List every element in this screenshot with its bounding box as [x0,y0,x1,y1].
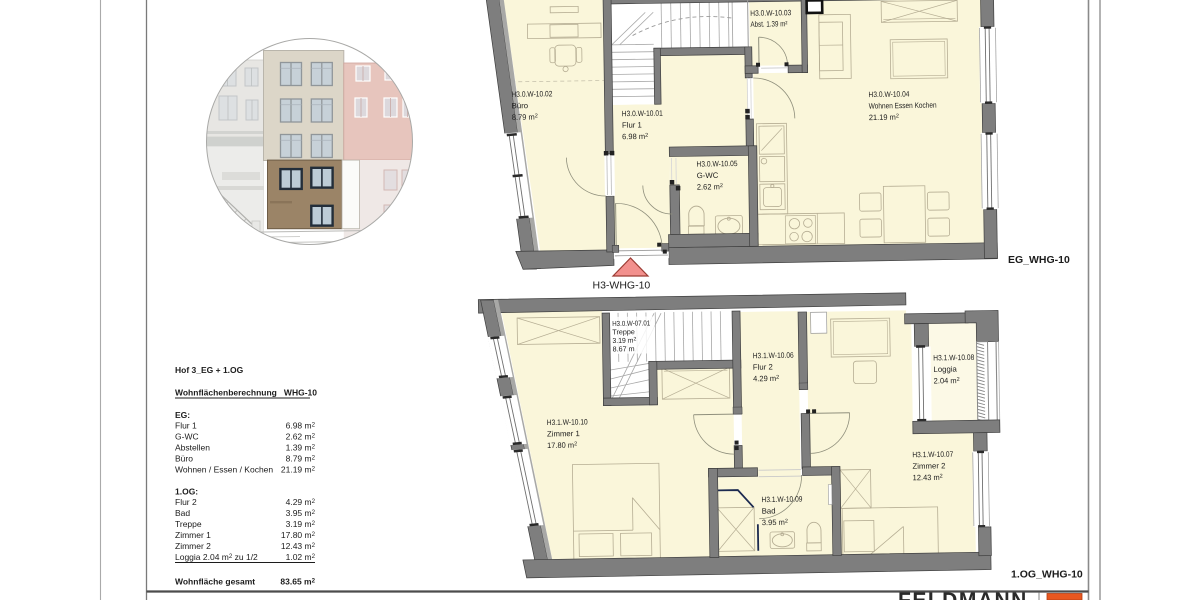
svg-text:H3.0.W-10.03: H3.0.W-10.03 [750,8,791,18]
svg-text:Flur 1: Flur 1 [622,120,642,129]
svg-text:H3.1.W-10.09: H3.1.W-10.09 [761,495,802,505]
svg-text:Bad: Bad [175,508,190,518]
svg-text:2: 2 [535,113,538,119]
svg-text:2: 2 [940,474,943,480]
svg-text:3.95 m: 3.95 m [762,518,785,527]
svg-text:1.OG_WHG-10: 1.OG_WHG-10 [1011,569,1083,581]
svg-text:Abstellen: Abstellen [175,443,210,453]
svg-text:Zimmer 2: Zimmer 2 [175,541,211,551]
svg-text:G-WC: G-WC [697,171,719,180]
svg-text:8.79 m2: 8.79 m2 [286,454,316,464]
svg-text:Flur 2: Flur 2 [753,362,773,371]
svg-text:6.98 m: 6.98 m [622,132,645,141]
svg-text:2: 2 [633,336,636,342]
svg-text:6.98 m2: 6.98 m2 [286,421,316,431]
svg-text:2: 2 [785,519,788,525]
svg-text:Wohnflächenberechnung WHG-10: Wohnflächenberechnung WHG-10 [175,388,317,398]
svg-text:Zimmer 1: Zimmer 1 [547,429,580,439]
svg-text:Büro: Büro [512,101,529,110]
svg-text:Wohnen Essen Kochen: Wohnen Essen Kochen [869,101,937,111]
svg-text:H3.0.W-10.02: H3.0.W-10.02 [511,89,552,99]
svg-text:8.79 m: 8.79 m [512,113,535,122]
svg-text:Zimmer 1: Zimmer 1 [175,530,211,540]
svg-text:FELDMANN: FELDMANN [898,589,1028,600]
svg-text:12.43 m: 12.43 m [913,473,940,482]
svg-text:H3.0.W-10.05: H3.0.W-10.05 [696,159,738,169]
svg-text:2.04 m: 2.04 m [934,376,957,385]
svg-text:2: 2 [776,375,779,381]
svg-text:83.65 m2: 83.65 m2 [280,577,315,587]
svg-text:21.19 m: 21.19 m [869,113,896,122]
svg-text:17.80 m: 17.80 m [547,441,574,450]
svg-text:H3-WHG-10: H3-WHG-10 [593,280,651,292]
svg-text:Treppe: Treppe [175,519,202,529]
svg-text:Wohnfläche gesamt: Wohnfläche gesamt [175,577,255,587]
svg-text:2: 2 [720,183,723,189]
svg-text:3.95 m2: 3.95 m2 [286,508,316,518]
svg-text:1.39 m2: 1.39 m2 [286,443,316,453]
svg-text:4.29 m2: 4.29 m2 [286,497,316,507]
svg-text:21.19 m2: 21.19 m2 [281,465,316,475]
svg-text:H3.0.W-10.04: H3.0.W-10.04 [868,89,910,99]
svg-text:Loggia 2.04 m2 zu 1/2: Loggia 2.04 m2 zu 1/2 [175,552,258,562]
svg-text:H3.0.W-10.01: H3.0.W-10.01 [622,109,663,119]
svg-text:2: 2 [574,441,577,447]
svg-text:Büro: Büro [175,454,193,464]
svg-text:1.OG:: 1.OG: [175,487,198,497]
svg-text:Hof 3_EG + 1.OG: Hof 3_EG + 1.OG [175,365,244,375]
svg-text:2: 2 [645,133,648,139]
svg-text:1.02 m2: 1.02 m2 [286,552,316,562]
svg-text:Abst. 1.39 m²: Abst. 1.39 m² [750,19,787,29]
svg-text:17.80 m2: 17.80 m2 [281,530,316,540]
svg-text:H3.1.W-10.10: H3.1.W-10.10 [547,417,589,427]
svg-text:EG_WHG-10: EG_WHG-10 [1008,254,1070,266]
svg-text:Flur 1: Flur 1 [175,421,197,431]
svg-text:Zimmer 2: Zimmer 2 [912,461,945,471]
svg-text:4.29 m: 4.29 m [753,374,776,383]
svg-text:H3.1.W-10.06: H3.1.W-10.06 [753,351,794,361]
svg-text:2.62 m: 2.62 m [697,182,720,191]
svg-text:2: 2 [896,113,899,119]
svg-text:8.67 m: 8.67 m [613,344,635,353]
svg-text:EG:: EG: [175,410,190,420]
svg-text:12.43 m2: 12.43 m2 [281,541,316,551]
svg-text:Loggia: Loggia [933,365,957,374]
svg-text:Bad: Bad [762,506,776,515]
svg-text:2.62 m2: 2.62 m2 [286,432,316,442]
svg-text:Flur 2: Flur 2 [175,497,197,507]
svg-text:G-WC: G-WC [175,432,199,442]
svg-text:3.19 m2: 3.19 m2 [286,519,316,529]
svg-text:Wohnen / Essen / Kochen: Wohnen / Essen / Kochen [175,465,273,475]
svg-text:2: 2 [957,377,960,383]
svg-text:H3.1.W-10.07: H3.1.W-10.07 [912,450,953,460]
svg-text:H3.1.W-10.08: H3.1.W-10.08 [933,353,974,363]
